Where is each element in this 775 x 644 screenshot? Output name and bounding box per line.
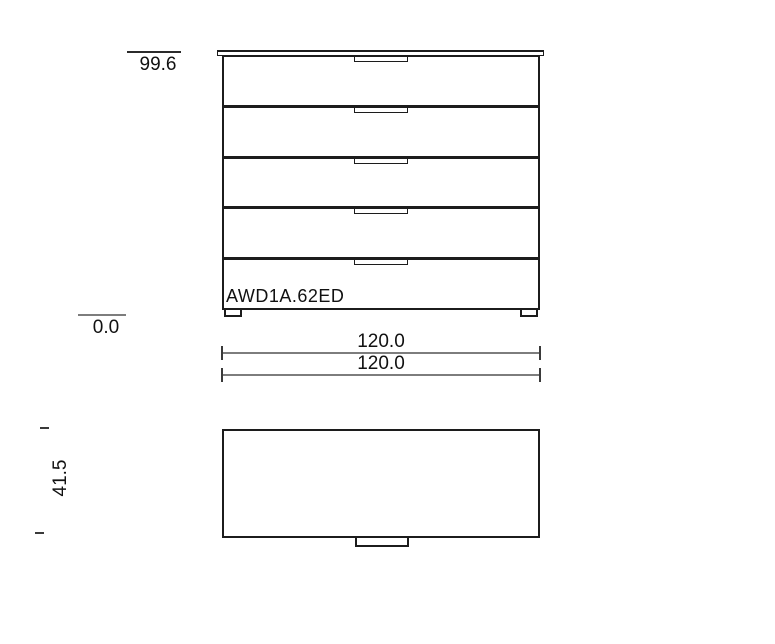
width-dimension-secondary-tick-left xyxy=(221,368,223,382)
drawer xyxy=(224,108,538,159)
baseline-dimension-label: 0.0 xyxy=(82,317,130,339)
drawer-handle xyxy=(354,260,408,265)
height-dimension-line xyxy=(127,51,181,53)
furniture-dimension-drawing: AWD1A.62ED 99.6 0.0 120.0 120.0 41.5 xyxy=(0,0,775,644)
drawer-handle xyxy=(354,108,408,113)
cabinet-foot-right xyxy=(520,310,538,317)
baseline-dimension-line xyxy=(78,314,126,316)
height-dimension-label: 99.6 xyxy=(131,54,185,76)
drawer xyxy=(224,57,538,108)
depth-dimension-tick-top xyxy=(40,427,49,429)
drawer xyxy=(224,159,538,210)
width-dimension-secondary-label: 120.0 xyxy=(222,353,540,375)
drawer xyxy=(224,209,538,260)
drawer-handle xyxy=(354,159,408,164)
cabinet-foot-left xyxy=(224,310,242,317)
drawer-handle xyxy=(354,209,408,214)
depth-dimension-tick-bottom xyxy=(35,532,44,534)
drawer-handle xyxy=(354,57,408,62)
model-label: AWD1A.62ED xyxy=(226,286,344,306)
front-elevation-view xyxy=(222,55,540,310)
top-plan-view xyxy=(222,429,540,538)
depth-dimension-label: 41.5 xyxy=(50,448,72,508)
width-dimension-secondary-line xyxy=(222,374,540,376)
width-dimension-primary-label: 120.0 xyxy=(222,331,540,353)
top-view-handle xyxy=(355,538,409,547)
width-dimension-secondary-tick-right xyxy=(539,368,541,382)
